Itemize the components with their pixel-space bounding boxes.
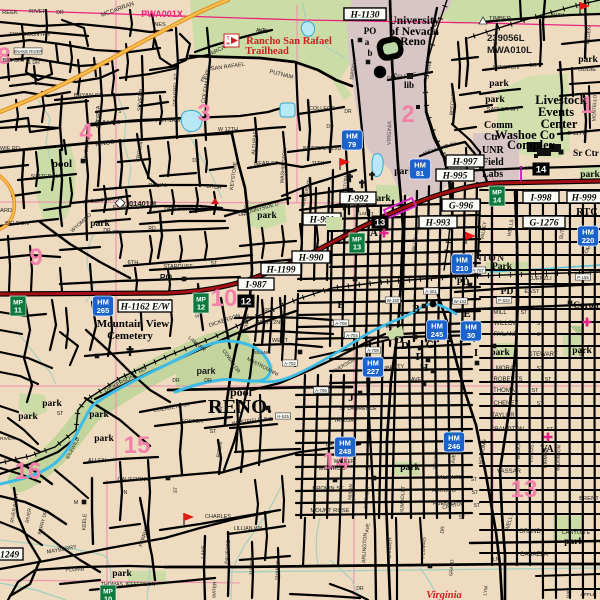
svg-text:EAST: EAST <box>524 289 540 295</box>
svg-text:A-702: A-702 <box>284 361 296 366</box>
svg-text:WEST 2ND: WEST 2ND <box>256 320 284 326</box>
svg-text:CANYON E: CANYON E <box>562 530 591 536</box>
svg-text:I-992: I-992 <box>346 194 368 204</box>
svg-text:Park: Park <box>492 262 513 272</box>
svg-text:MOUNT ROSE: MOUNT ROSE <box>310 508 349 514</box>
svg-text:2: 2 <box>401 101 414 128</box>
svg-text:DR: DR <box>56 10 64 16</box>
svg-text:FOSTER: FOSTER <box>181 419 203 425</box>
svg-text:MILL: MILL <box>493 310 507 316</box>
svg-text:park: park <box>489 79 509 89</box>
svg-text:265: 265 <box>97 306 110 315</box>
svg-text:park: park <box>18 412 38 422</box>
svg-text:Virginia: Virginia <box>426 590 462 600</box>
svg-text:ST LAWRENCE: ST LAWRENCE <box>339 406 377 412</box>
svg-text:E 11TH: E 11TH <box>567 131 586 137</box>
svg-text:DR: DR <box>440 526 447 534</box>
svg-text:SNAKE RIVER: SNAKE RIVER <box>14 49 43 54</box>
svg-text:ST: ST <box>537 401 544 407</box>
svg-text:CHENEY: CHENEY <box>493 401 518 407</box>
svg-text:79: 79 <box>348 140 356 149</box>
svg-text:H-995: H-995 <box>442 171 468 181</box>
svg-text:PO: PO <box>160 272 173 282</box>
svg-text:park: park <box>490 348 510 358</box>
svg-text:STARDUST: STARDUST <box>163 264 193 270</box>
svg-text:6TH: 6TH <box>128 260 139 266</box>
svg-text:WIE RD: WIE RD <box>0 146 20 152</box>
svg-text:park: park <box>400 463 420 473</box>
svg-text:14: 14 <box>536 165 547 176</box>
svg-text:CINDERELLA: CINDERELLA <box>169 207 204 213</box>
svg-text:WAY: WAY <box>552 13 565 19</box>
svg-text:ODDIE: ODDIE <box>578 67 596 73</box>
svg-text:WILSON: WILSON <box>516 440 523 460</box>
svg-text:Field: Field <box>482 157 504 168</box>
svg-text:11: 11 <box>14 306 22 315</box>
svg-text:DR: DR <box>206 184 214 190</box>
svg-text:RYLAND: RYLAND <box>494 332 519 338</box>
svg-text:THOMA: THOMA <box>493 388 515 394</box>
svg-text:A-709: A-709 <box>367 348 379 353</box>
svg-text:RD: RD <box>264 308 272 314</box>
svg-text:ISLAND: ISLAND <box>253 350 271 356</box>
svg-text:210: 210 <box>456 264 469 273</box>
svg-text:park: park <box>485 95 505 105</box>
svg-text:5: 5 <box>119 109 122 115</box>
svg-text:16: 16 <box>15 458 42 485</box>
svg-text:CHARLES: CHARLES <box>205 514 231 520</box>
svg-text:LILLIAN WY: LILLIAN WY <box>234 526 263 532</box>
svg-text:10: 10 <box>211 285 238 312</box>
svg-text:DR: DR <box>529 63 537 69</box>
svg-text:park: park <box>580 170 600 180</box>
svg-text:13: 13 <box>375 218 386 229</box>
svg-text:b: b <box>367 48 372 58</box>
svg-text:ST: ST <box>474 503 481 509</box>
svg-text:AVE: AVE <box>451 454 458 464</box>
svg-text:B: B <box>412 303 420 315</box>
svg-text:I: I <box>474 347 478 359</box>
svg-text:ST: ST <box>537 332 544 338</box>
svg-text:30: 30 <box>467 331 475 340</box>
svg-text:LANDER: LANDER <box>386 537 393 559</box>
svg-text:VASSAR: VASSAR <box>497 469 522 475</box>
svg-text:AVE: AVE <box>365 523 372 533</box>
svg-text:G: G <box>426 339 435 351</box>
svg-text:lib: lib <box>404 80 414 90</box>
svg-text:TIMBER: TIMBER <box>489 16 511 22</box>
svg-text:Cemetery: Cemetery <box>107 330 153 342</box>
svg-text:BELDON: BELDON <box>5 221 29 227</box>
svg-text:LN: LN <box>493 557 500 563</box>
svg-text:WALKER: WALKER <box>334 459 355 465</box>
svg-text:G-996: G-996 <box>449 201 474 211</box>
svg-text:W 12TH: W 12TH <box>218 127 238 133</box>
svg-text:220: 220 <box>582 236 595 245</box>
svg-text:13: 13 <box>353 243 361 252</box>
svg-text:ST: ST <box>211 261 218 267</box>
svg-text:A-704: A-704 <box>346 333 358 338</box>
svg-text:park: park <box>89 410 109 420</box>
svg-text:BIG SKY: BIG SKY <box>2 58 25 64</box>
svg-text:15: 15 <box>124 432 151 459</box>
svg-text:DR: DR <box>326 124 334 130</box>
svg-text:12: 12 <box>197 303 205 312</box>
svg-text:10: 10 <box>104 595 112 600</box>
svg-text:KUENZLI: KUENZLI <box>528 276 552 282</box>
svg-text:Comm: Comm <box>484 120 514 131</box>
svg-text:BROWN ST: BROWN ST <box>312 486 344 492</box>
svg-text:A-707: A-707 <box>472 268 484 273</box>
svg-text:WILKINSON: WILKINSON <box>556 445 562 471</box>
svg-text:I-987: I-987 <box>244 280 267 290</box>
svg-text:014019L: 014019L <box>129 199 159 208</box>
svg-text:W-150: W-150 <box>387 298 400 303</box>
svg-text:A-301: A-301 <box>425 289 437 294</box>
svg-text:Ctr: Ctr <box>484 132 500 143</box>
svg-text:J: J <box>348 392 354 404</box>
svg-text:SLATER AVE: SLATER AVE <box>31 174 64 180</box>
svg-text:ST: ST <box>459 515 466 521</box>
svg-text:VA: VA <box>540 444 554 455</box>
svg-text:WAY: WAY <box>566 587 573 599</box>
svg-text:H-1130: H-1130 <box>349 10 379 20</box>
svg-text:W-193: W-193 <box>454 299 467 304</box>
svg-text:park: park <box>90 219 110 229</box>
svg-text:park: park <box>578 55 598 65</box>
svg-text:H-993: H-993 <box>425 218 451 228</box>
svg-text:H-999: H-999 <box>571 193 597 203</box>
svg-text:-1249: -1249 <box>0 550 19 560</box>
svg-text:ROYAL: ROYAL <box>148 183 168 189</box>
svg-text:H-997: H-997 <box>452 157 479 167</box>
svg-text:M: M <box>74 500 79 506</box>
svg-text:A: A <box>370 227 378 239</box>
svg-text:P-633: P-633 <box>498 298 510 303</box>
svg-text:pool: pool <box>230 385 253 399</box>
svg-text:APPLE: APPLE <box>580 592 595 598</box>
svg-text:ARD: ARD <box>0 208 12 214</box>
svg-text:Sr Ctr: Sr Ctr <box>573 149 600 159</box>
svg-text:CRAMPTON: CRAMPTON <box>490 427 524 433</box>
svg-text:13: 13 <box>511 476 538 503</box>
svg-text:ST: ST <box>173 487 179 494</box>
svg-text:7TH: 7TH <box>113 230 124 236</box>
svg-text:248: 248 <box>339 447 352 456</box>
svg-text:BRYAN ST: BRYAN ST <box>74 93 103 99</box>
svg-text:ROBERTS: ROBERTS <box>494 377 523 383</box>
svg-text:DR: DR <box>214 185 222 191</box>
svg-text:ST: ST <box>210 429 217 435</box>
svg-text:NES: NES <box>154 22 166 28</box>
svg-text:park: park <box>572 346 592 356</box>
svg-text:PD: PD <box>457 278 470 288</box>
svg-text:AVE: AVE <box>256 28 267 34</box>
svg-text:Reno: Reno <box>400 36 426 48</box>
svg-text:Trailhead: Trailhead <box>245 46 289 57</box>
svg-text:c: c <box>393 70 397 80</box>
svg-text:H-1162 E/W: H-1162 E/W <box>120 302 170 312</box>
svg-text:WATER: WATER <box>212 581 219 599</box>
svg-text:ST: ST <box>57 411 64 417</box>
svg-text:LN: LN <box>121 490 128 496</box>
svg-text:A-706: A-706 <box>315 388 327 393</box>
svg-text:245: 245 <box>431 330 444 339</box>
svg-text:WINSTON: WINSTON <box>493 65 519 71</box>
svg-text:DR: DR <box>204 378 212 384</box>
svg-text:E: E <box>463 308 470 320</box>
svg-text:ST: ST <box>471 477 478 483</box>
svg-text:ST: ST <box>521 310 528 316</box>
svg-text:H-990: H-990 <box>298 253 324 263</box>
svg-text:WILLOW: WILLOW <box>494 321 519 327</box>
svg-text:T: T <box>227 36 230 41</box>
svg-text:MONTELLO: MONTELLO <box>592 94 599 121</box>
svg-text:239056L: 239056L <box>487 33 525 44</box>
svg-text:WEST: WEST <box>272 338 289 344</box>
svg-text:O'FARREL ST: O'FARREL ST <box>172 73 179 107</box>
svg-text:E: E <box>337 299 344 311</box>
svg-text:park: park <box>257 211 277 221</box>
svg-text:81: 81 <box>416 169 424 178</box>
svg-text:14: 14 <box>493 196 502 205</box>
svg-text:ST: ST <box>532 388 539 394</box>
svg-text:11TH: 11TH <box>311 161 324 167</box>
svg-text:8: 8 <box>0 43 11 70</box>
svg-text:PUTNAM: PUTNAM <box>156 118 181 124</box>
svg-text:PO: PO <box>364 26 377 36</box>
svg-text:CALIFORNIA: CALIFORNIA <box>117 477 150 483</box>
svg-text:park: park <box>564 537 584 547</box>
svg-text:H-1199: H-1199 <box>265 265 295 275</box>
svg-text:1 DR: 1 DR <box>28 60 40 66</box>
svg-text:ST: ST <box>365 466 372 472</box>
svg-text:STEWART: STEWART <box>528 352 557 358</box>
svg-text:Complex: Complex <box>507 138 556 152</box>
svg-text:TAYLOR: TAYLOR <box>491 413 515 419</box>
svg-text:TAYLOR: TAYLOR <box>334 418 354 424</box>
svg-text:a: a <box>365 37 370 47</box>
svg-text:MWA010L: MWA010L <box>487 45 532 56</box>
svg-text:DR: DR <box>344 109 352 115</box>
svg-text:D: D <box>401 340 409 352</box>
svg-text:REEK: REEK <box>2 10 18 16</box>
svg-text:227: 227 <box>367 367 380 376</box>
svg-text:SHARON: SHARON <box>274 559 281 580</box>
svg-text:Coron: Coron <box>573 301 599 311</box>
svg-text:9: 9 <box>29 244 42 271</box>
svg-text:GRAND: GRAND <box>519 529 541 535</box>
svg-text:PWA001X: PWA001X <box>141 9 183 19</box>
svg-text:RD: RD <box>148 226 156 232</box>
svg-text:MONROE: MONROE <box>319 466 346 472</box>
svg-text:LAKE: LAKE <box>201 545 208 559</box>
svg-text:Mountain View: Mountain View <box>97 318 169 330</box>
svg-text:H-525: H-525 <box>277 414 289 419</box>
svg-text:BRENT: BRENT <box>579 496 599 502</box>
svg-text:SKY COUNTRY: SKY COUNTRY <box>9 32 51 38</box>
svg-text:MARSH: MARSH <box>249 557 256 575</box>
svg-text:H: H <box>226 41 229 46</box>
svg-text:ELM ST: ELM ST <box>356 211 373 217</box>
svg-text:RTC: RTC <box>576 207 598 218</box>
svg-text:ST: ST <box>537 366 544 372</box>
svg-text:ALLEN: ALLEN <box>88 458 106 464</box>
svg-text:RIVER: RIVER <box>29 9 47 15</box>
svg-text:park: park <box>112 569 132 579</box>
svg-text:CASAZZA: CASAZZA <box>520 552 548 558</box>
svg-text:A-708: A-708 <box>335 321 347 326</box>
svg-text:RIVER: RIVER <box>0 436 15 442</box>
svg-text:GEAR ST: GEAR ST <box>254 161 279 167</box>
svg-text:1ST: 1ST <box>385 324 394 330</box>
svg-text:ST: ST <box>537 321 544 327</box>
svg-text:AVE: AVE <box>411 377 422 383</box>
svg-text:KEELE: KEELE <box>82 513 89 531</box>
svg-text:UNR: UNR <box>482 145 504 156</box>
svg-text:P-155: P-155 <box>577 275 589 280</box>
svg-text:CALIENTE: CALIENTE <box>436 475 463 481</box>
svg-text:PLUMAS: PLUMAS <box>420 537 427 559</box>
svg-text:pool: pool <box>52 158 72 170</box>
svg-text:MORAN: MORAN <box>496 366 518 372</box>
svg-text:park: park <box>42 399 62 409</box>
svg-text:ANDREA: ANDREA <box>96 105 102 128</box>
svg-text:H: H <box>420 362 429 374</box>
svg-text:COLLEGE: COLLEGE <box>309 106 335 112</box>
svg-text:PD: PD <box>501 287 514 297</box>
svg-text:park: park <box>196 366 216 376</box>
svg-text:park: park <box>94 434 114 444</box>
svg-text:ST: ST <box>547 427 554 433</box>
svg-text:DR: DR <box>356 586 364 592</box>
svg-text:G-1276: G-1276 <box>529 218 558 228</box>
svg-text:12: 12 <box>241 297 252 308</box>
svg-text:VIRGINIA: VIRGINIA <box>387 120 394 145</box>
svg-text:DR: DR <box>192 158 200 164</box>
svg-text:246: 246 <box>448 442 461 451</box>
svg-text:I-998: I-998 <box>529 193 551 203</box>
svg-text:RENO.: RENO. <box>208 396 272 418</box>
svg-text:Labs: Labs <box>482 169 503 180</box>
svg-text:DR: DR <box>172 378 180 384</box>
svg-text:IMPERIAL BLVD: IMPERIAL BLVD <box>303 146 342 152</box>
svg-text:SADLER WY: SADLER WY <box>487 107 520 113</box>
svg-text:ST: ST <box>472 490 479 496</box>
svg-text:ARROYO: ARROYO <box>432 488 457 494</box>
svg-text:ST: ST <box>545 377 552 383</box>
